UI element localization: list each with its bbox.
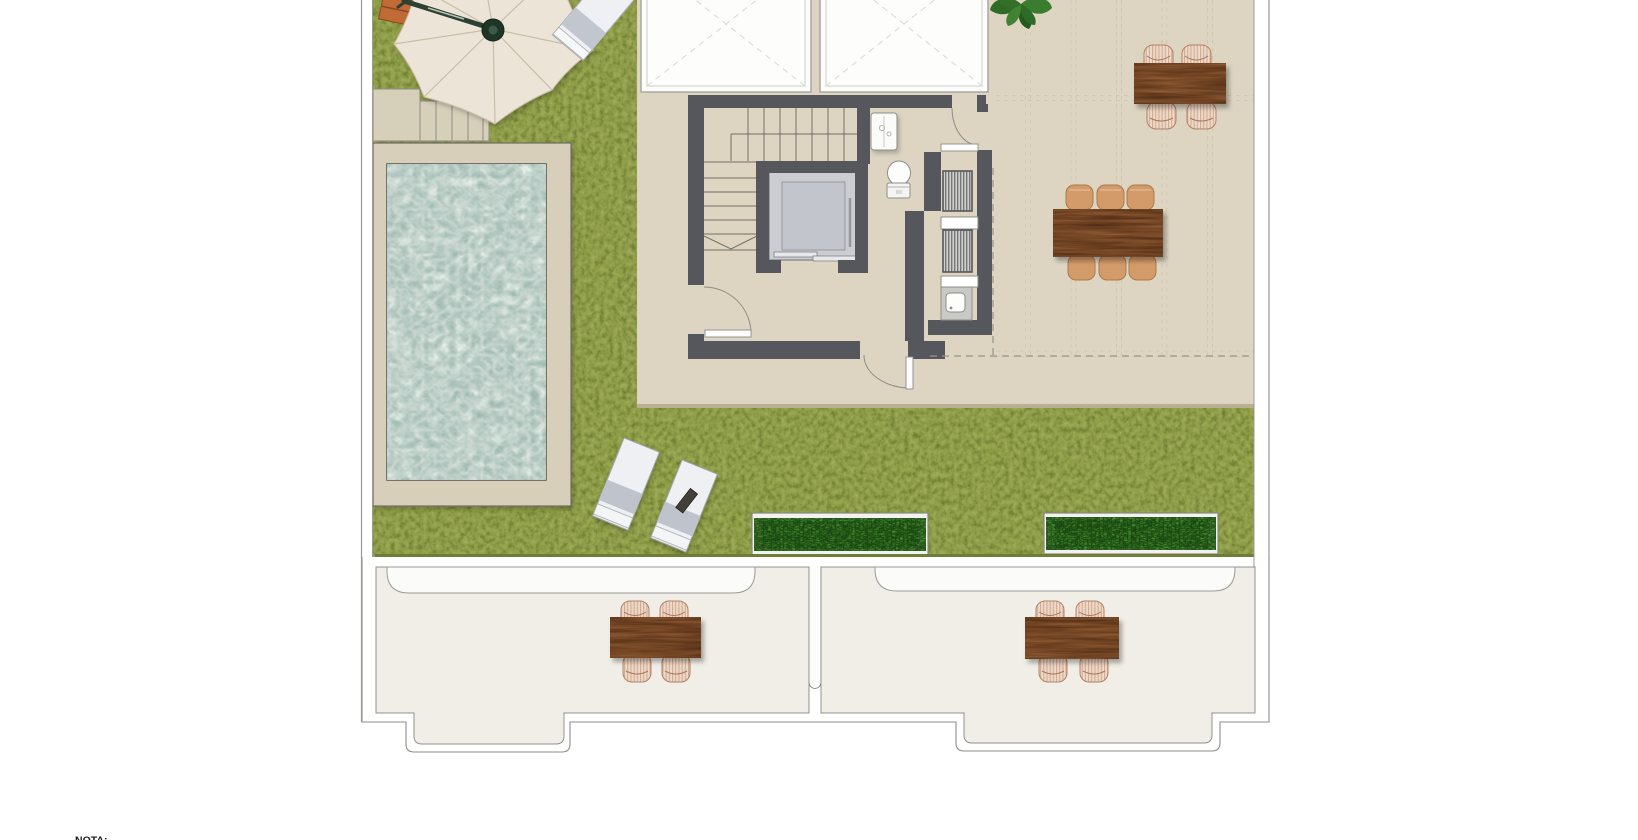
svg-text:NOTA:: NOTA:: [75, 835, 107, 840]
